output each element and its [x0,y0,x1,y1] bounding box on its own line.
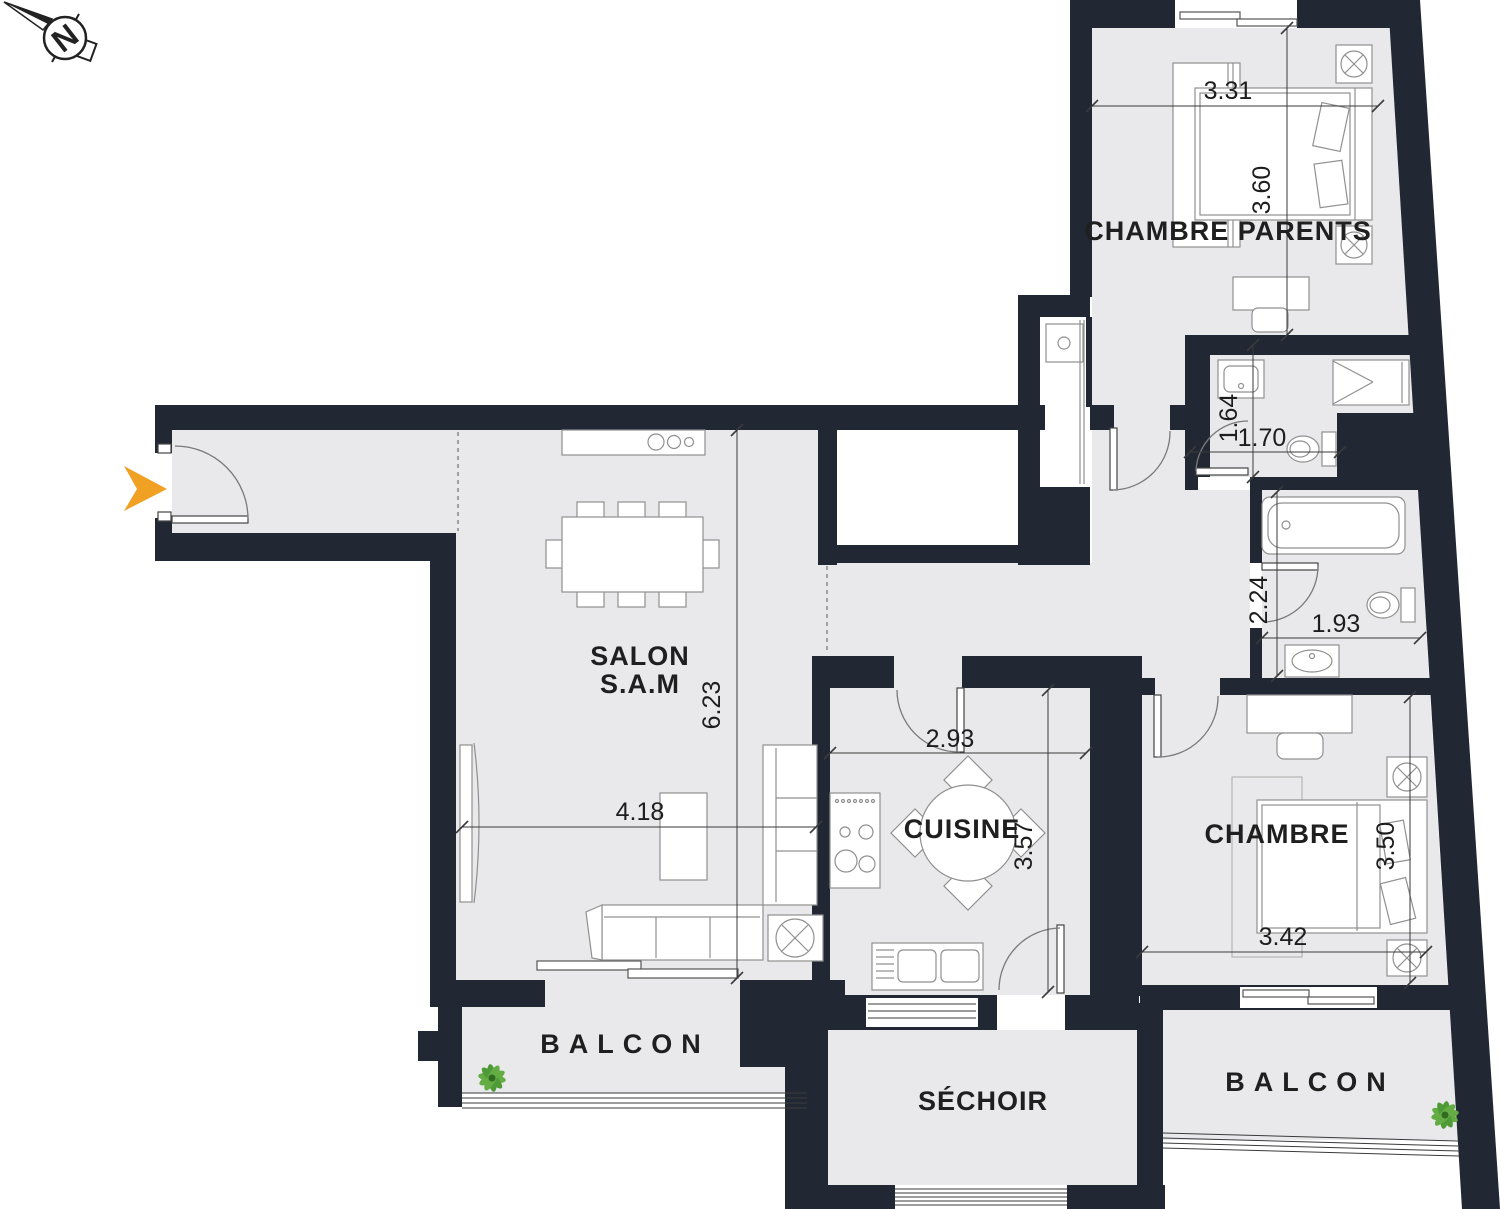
parents-nightstand-top [1336,45,1372,83]
svg-text:4.18: 4.18 [616,798,665,826]
svg-text:2.93: 2.93 [926,725,975,753]
bathtub [1262,497,1405,554]
coffee-table [660,793,707,880]
svg-text:1.70: 1.70 [1238,424,1287,452]
stove [830,793,880,888]
label-balcon-left: BALCON [540,1029,710,1059]
parents-bed [1195,88,1372,220]
label-balcon-right: BALCON [1225,1067,1395,1097]
svg-text:3.60: 3.60 [1248,166,1276,215]
svg-text:3.31: 3.31 [1204,77,1253,105]
shaft-void [837,428,1020,545]
label-salon-2: S.A.M [600,669,680,699]
balcon-left-railing [462,1093,807,1108]
svg-text:6.23: 6.23 [698,681,726,730]
svg-text:3.50: 3.50 [1372,822,1400,871]
bathroom-bottom-sink [1285,645,1339,677]
svg-text:3.42: 3.42 [1259,923,1308,951]
dining-table [546,502,719,607]
label-chambre: CHAMBRE [1205,819,1350,849]
chambre-nightstand-top [1387,757,1427,797]
label-sechoir: SÉCHOIR [918,1085,1048,1116]
shower [1333,360,1409,405]
kitchen-sink [872,943,983,990]
sideboard [562,430,705,455]
label-cuisine: CUISINE [904,814,1021,844]
svg-text:2.24: 2.24 [1245,576,1273,625]
north-compass: N [4,2,96,62]
floor-plan: 3.31 3.60 1.64 1.70 2.24 [0,0,1500,1209]
label-chambre-parents: CHAMBRE PARENTS [1084,216,1372,246]
svg-text:1.93: 1.93 [1312,610,1361,638]
label-salon-1: SALON [590,641,690,671]
bathroom-top-sink [1218,360,1264,398]
side-table-lamp [768,915,823,961]
